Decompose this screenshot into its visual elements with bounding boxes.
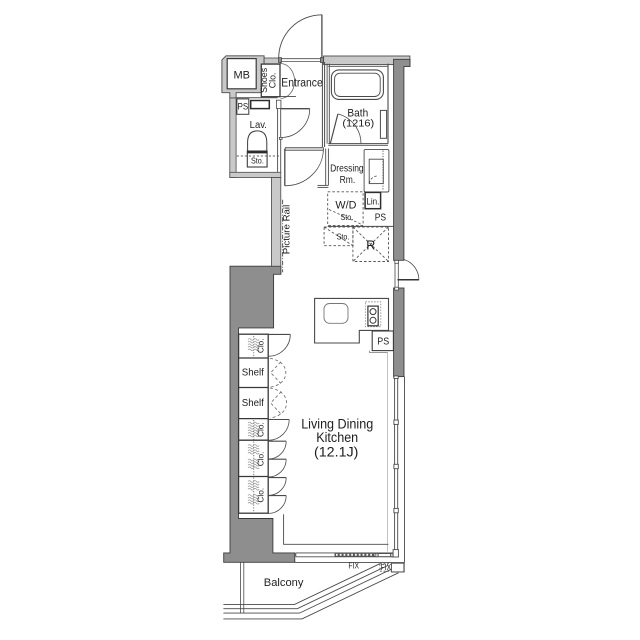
svg-text:Clo.: Clo. bbox=[267, 73, 277, 89]
svg-text:Picture Rail: Picture Rail bbox=[281, 205, 292, 254]
svg-text:PS: PS bbox=[377, 336, 389, 348]
svg-text:Clo.: Clo. bbox=[255, 452, 265, 467]
svg-text:Clo.: Clo. bbox=[255, 422, 265, 437]
svg-text:(1216): (1216) bbox=[342, 118, 374, 130]
svg-text:PS: PS bbox=[375, 212, 386, 223]
svg-text:R: R bbox=[366, 238, 375, 252]
svg-text:Lin.: Lin. bbox=[366, 196, 379, 207]
svg-text:(12.1J): (12.1J) bbox=[314, 444, 358, 460]
svg-text:PS: PS bbox=[238, 101, 249, 112]
svg-text:Rm.: Rm. bbox=[340, 174, 356, 185]
svg-text:Shelf: Shelf bbox=[242, 398, 264, 409]
svg-text:Entrance: Entrance bbox=[281, 77, 322, 90]
svg-text:Dressing: Dressing bbox=[330, 163, 363, 174]
svg-text:FIX: FIX bbox=[381, 562, 392, 572]
svg-text:Sto.: Sto. bbox=[340, 212, 353, 222]
svg-text:Clo.: Clo. bbox=[255, 338, 265, 353]
svg-text:Sto.: Sto. bbox=[251, 156, 264, 166]
svg-text:MB: MB bbox=[233, 70, 250, 82]
svg-text:Clo.: Clo. bbox=[255, 488, 265, 503]
svg-text:FIX: FIX bbox=[348, 561, 359, 571]
svg-text:W/D: W/D bbox=[335, 199, 356, 211]
svg-text:Lav.: Lav. bbox=[250, 120, 267, 131]
svg-text:Balcony: Balcony bbox=[264, 577, 304, 589]
svg-text:Shelf: Shelf bbox=[242, 368, 264, 379]
svg-text:Sto.: Sto. bbox=[337, 232, 350, 242]
